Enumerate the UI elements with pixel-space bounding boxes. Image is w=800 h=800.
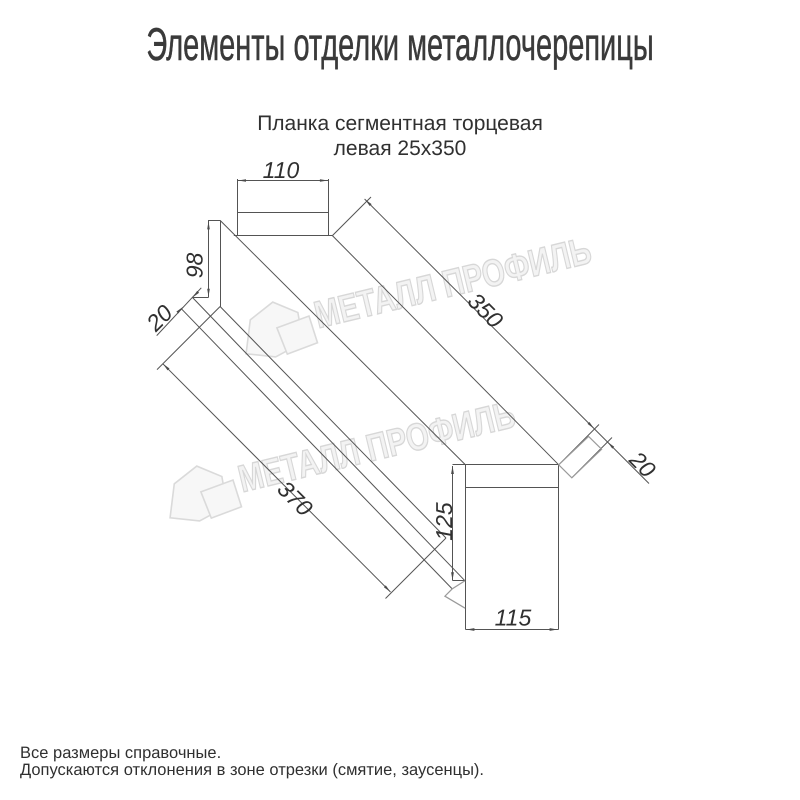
svg-text:20: 20	[624, 445, 661, 482]
svg-text:МЕТАЛЛ ПРОФИЛЬ: МЕТАЛЛ ПРОФИЛЬ	[310, 230, 595, 337]
svg-text:125: 125	[431, 502, 457, 541]
svg-text:110: 110	[263, 157, 300, 183]
svg-text:98: 98	[182, 253, 208, 279]
svg-text:20: 20	[140, 299, 177, 336]
svg-text:115: 115	[495, 605, 532, 631]
svg-text:МЕТАЛЛ ПРОФИЛЬ: МЕТАЛЛ ПРОФИЛЬ	[234, 394, 519, 501]
